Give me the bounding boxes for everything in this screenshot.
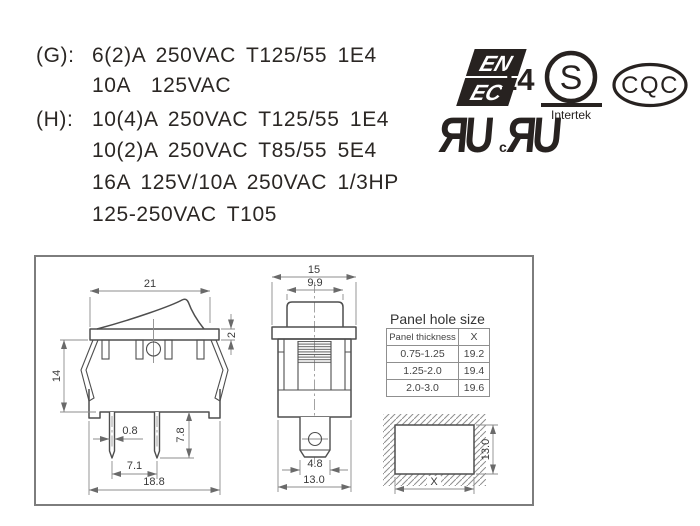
rocker-button — [287, 302, 343, 327]
rating-label: (H): — [36, 108, 92, 132]
panel-cutout-drawing: 13.0 X — [383, 414, 498, 494]
cqc-text: CQC — [621, 72, 679, 99]
ul-recognized-icon: ЯU — [505, 113, 560, 157]
cell-thickness: 1.25-2.0 — [387, 363, 459, 380]
dim-label-pin-pitch: 7.1 — [127, 460, 142, 472]
col-header-x: X — [459, 329, 490, 346]
cell-thickness: 2.0-3.0 — [387, 380, 459, 397]
cell-x: 19.4 — [459, 363, 490, 380]
rating-text: 10A 125VAC — [92, 74, 231, 97]
rating-line: (G):6(2)A 250VAC T125/55 1E4 — [36, 44, 377, 70]
dim-label-front-top-width: 15 — [308, 264, 320, 276]
ribbed-section — [299, 341, 331, 364]
table-row: 0.75-1.25 19.2 — [387, 346, 490, 363]
rocker-profile — [97, 299, 204, 329]
dim-label-flange-height: 2 — [226, 332, 238, 338]
dim-label-side-top-width: 21 — [144, 278, 156, 290]
side-view-drawing: 21 2 14 0.8 7.8 7.1 18.8 — [51, 278, 238, 495]
rating-text: 16A 125V/10A 250VAC 1/3HP — [92, 171, 399, 194]
rating-text: 6(2)A 250VAC T125/55 1E4 — [92, 44, 377, 67]
col-header-thickness: Panel thickness — [387, 329, 459, 346]
flange — [90, 329, 219, 340]
dim-label-body-height: 14 — [51, 370, 63, 382]
dim-label-pin-length: 7.8 — [175, 427, 187, 442]
rating-text: 10(4)A 250VAC T125/55 1E4 — [92, 108, 389, 131]
rating-label: (G): — [36, 44, 92, 68]
rating-line: 10(2)A 250VAC T85/55 5E4 — [36, 139, 377, 165]
front-view-drawing: 15 9.9 4.8 13.0 — [272, 264, 356, 492]
dim-label-base-width: 18.8 — [143, 476, 164, 488]
dim-label-cutout-height: 13.0 — [480, 439, 492, 460]
panel-hole-table: Panel thickness X 0.75-1.25 19.2 1.25-2.… — [386, 328, 490, 397]
rating-line: (H):10(4)A 250VAC T125/55 1E4 — [36, 108, 389, 134]
dim-label-pin-width: 0.8 — [122, 425, 137, 437]
table-row: 2.0-3.0 19.6 — [387, 380, 490, 397]
dim-label-terminal-width: 4.8 — [307, 458, 322, 470]
dim-label-rocker-width: 9.9 — [307, 277, 322, 289]
ul-recognized-icon: ЯU — [437, 113, 492, 157]
panel-table-title: Panel hole size — [390, 311, 485, 327]
flange — [272, 327, 356, 339]
rating-text: 125-250VAC T105 — [92, 203, 277, 226]
rating-text: 10(2)A 250VAC T85/55 5E4 — [92, 139, 377, 162]
rating-line: 10A 125VAC — [36, 74, 231, 100]
cell-x: 19.2 — [459, 346, 490, 363]
dim-label-cutout-width: X — [430, 476, 438, 488]
table-header-row: Panel thickness X — [387, 329, 490, 346]
terminal-tab — [300, 417, 330, 457]
rating-line: 16A 125V/10A 250VAC 1/3HP — [36, 171, 399, 197]
intertek-s-letter: S — [560, 59, 583, 97]
ul-marks: ЯU c ЯU — [441, 113, 571, 157]
enec-number: 14 — [500, 62, 534, 98]
cutout-rect — [395, 425, 474, 474]
dim-label-front-body-width: 13.0 — [303, 474, 324, 486]
table-row: 1.25-2.0 19.4 — [387, 363, 490, 380]
rating-line: 125-250VAC T105 — [36, 203, 277, 229]
cell-thickness: 0.75-1.25 — [387, 346, 459, 363]
cell-x: 19.6 — [459, 380, 490, 397]
cqc-logo-icon: CQC — [611, 62, 689, 113]
